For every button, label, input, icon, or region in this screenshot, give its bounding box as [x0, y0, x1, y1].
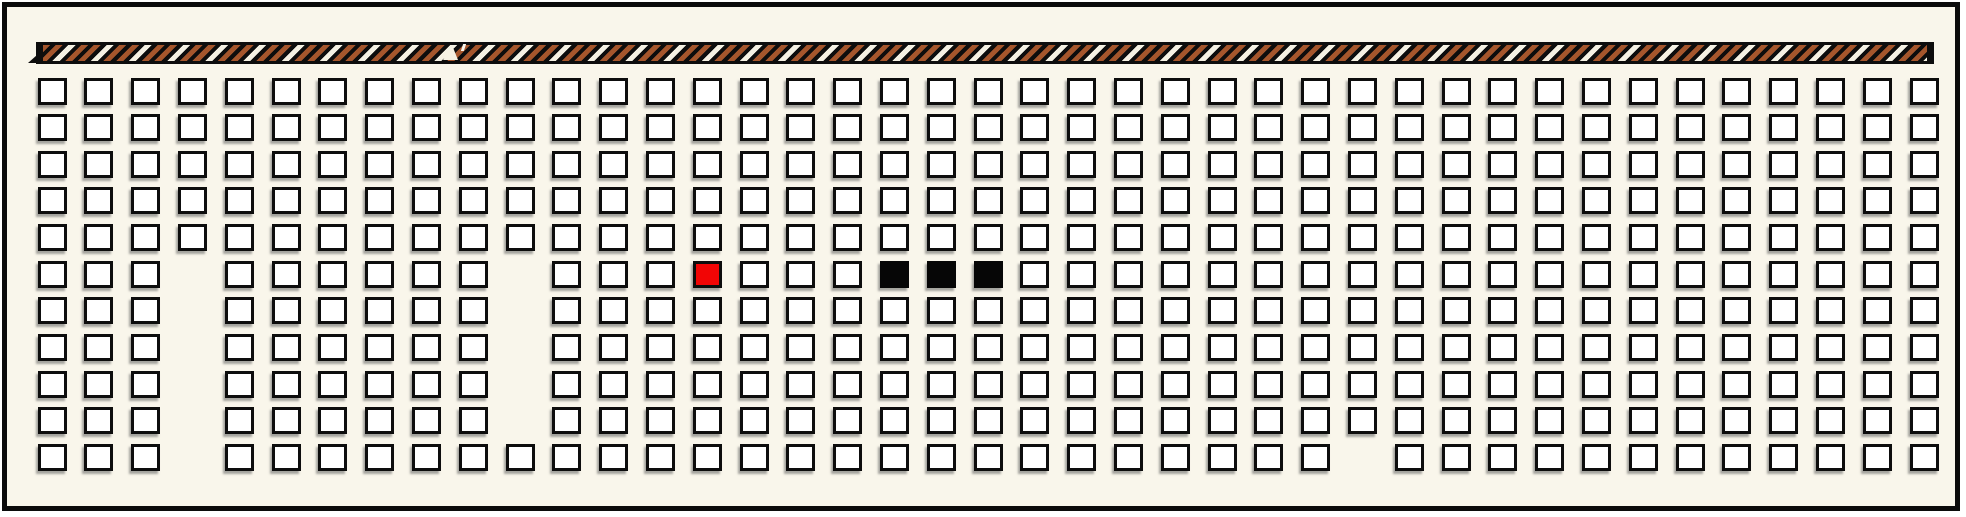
seat[interactable]	[552, 78, 581, 105]
seat[interactable]	[365, 407, 394, 434]
seat[interactable]	[1488, 334, 1517, 361]
seat[interactable]	[1863, 151, 1892, 178]
seat[interactable]	[131, 297, 160, 324]
seat[interactable]	[272, 444, 301, 471]
seat[interactable]	[1020, 371, 1049, 398]
seat[interactable]	[1301, 297, 1330, 324]
seat[interactable]	[693, 187, 722, 214]
seat[interactable]	[880, 114, 909, 141]
seat[interactable]	[1816, 334, 1845, 361]
seat[interactable]	[599, 407, 628, 434]
seat[interactable]	[1348, 151, 1377, 178]
seat[interactable]	[38, 444, 67, 471]
seat[interactable]	[1254, 334, 1283, 361]
seat[interactable]	[786, 78, 815, 105]
seat[interactable]	[880, 187, 909, 214]
seat[interactable]	[459, 297, 488, 324]
seat[interactable]	[740, 187, 769, 214]
seat[interactable]	[412, 407, 441, 434]
seat[interactable]	[365, 444, 394, 471]
seat[interactable]	[1863, 444, 1892, 471]
seat[interactable]	[1208, 261, 1237, 288]
seat[interactable]	[225, 78, 254, 105]
seat[interactable]	[1629, 407, 1658, 434]
seat[interactable]	[365, 151, 394, 178]
seat[interactable]	[1067, 261, 1096, 288]
seat[interactable]	[412, 371, 441, 398]
seat[interactable]	[1348, 114, 1377, 141]
seat[interactable]	[178, 78, 207, 105]
seat[interactable]	[552, 261, 581, 288]
seat[interactable]	[1114, 114, 1143, 141]
seat[interactable]	[1114, 151, 1143, 178]
seat[interactable]	[1208, 78, 1237, 105]
seat[interactable]	[974, 444, 1003, 471]
seat[interactable]	[1816, 444, 1845, 471]
seat[interactable]	[412, 334, 441, 361]
seat[interactable]	[1863, 187, 1892, 214]
seat[interactable]	[1442, 151, 1471, 178]
seat[interactable]	[1722, 407, 1751, 434]
seat[interactable]	[786, 114, 815, 141]
seat[interactable]	[1067, 78, 1096, 105]
seat[interactable]	[1161, 224, 1190, 251]
seat[interactable]	[927, 371, 956, 398]
seat[interactable]	[786, 297, 815, 324]
seat[interactable]	[927, 297, 956, 324]
seat[interactable]	[1676, 444, 1705, 471]
seat[interactable]	[552, 407, 581, 434]
seat[interactable]	[1442, 261, 1471, 288]
seat[interactable]	[1582, 297, 1611, 324]
seat[interactable]	[131, 114, 160, 141]
seat[interactable]	[599, 334, 628, 361]
seat[interactable]	[646, 187, 675, 214]
seat[interactable]	[459, 334, 488, 361]
seat[interactable]	[412, 187, 441, 214]
seat[interactable]	[1488, 224, 1517, 251]
seat[interactable]	[1769, 151, 1798, 178]
seat[interactable]	[1816, 371, 1845, 398]
seat[interactable]	[552, 151, 581, 178]
seat[interactable]	[1910, 151, 1939, 178]
seat[interactable]	[1582, 407, 1611, 434]
seat[interactable]	[1161, 407, 1190, 434]
seat[interactable]	[365, 78, 394, 105]
seat-occupied[interactable]	[880, 261, 909, 288]
seat[interactable]	[1067, 444, 1096, 471]
seat[interactable]	[1582, 334, 1611, 361]
seat[interactable]	[740, 444, 769, 471]
seat[interactable]	[1676, 114, 1705, 141]
seat[interactable]	[318, 114, 347, 141]
seat[interactable]	[880, 334, 909, 361]
seat[interactable]	[506, 78, 535, 105]
seat[interactable]	[927, 187, 956, 214]
seat-occupied[interactable]	[974, 261, 1003, 288]
seat[interactable]	[1348, 224, 1377, 251]
seat[interactable]	[1629, 334, 1658, 361]
seat[interactable]	[1488, 187, 1517, 214]
seat[interactable]	[1067, 407, 1096, 434]
seat[interactable]	[318, 151, 347, 178]
seat[interactable]	[1348, 334, 1377, 361]
seat[interactable]	[318, 444, 347, 471]
seat[interactable]	[740, 297, 769, 324]
seat[interactable]	[84, 371, 113, 398]
seat[interactable]	[365, 297, 394, 324]
seat[interactable]	[318, 371, 347, 398]
seat[interactable]	[318, 297, 347, 324]
seat[interactable]	[38, 297, 67, 324]
seat[interactable]	[459, 224, 488, 251]
seat[interactable]	[272, 261, 301, 288]
seat[interactable]	[1816, 261, 1845, 288]
seat[interactable]	[833, 407, 862, 434]
seat[interactable]	[786, 407, 815, 434]
seat[interactable]	[1442, 114, 1471, 141]
seat[interactable]	[1863, 224, 1892, 251]
seat[interactable]	[225, 334, 254, 361]
seat[interactable]	[974, 224, 1003, 251]
seat[interactable]	[1910, 224, 1939, 251]
seat[interactable]	[506, 444, 535, 471]
seat[interactable]	[1769, 334, 1798, 361]
seat[interactable]	[131, 151, 160, 178]
seat[interactable]	[974, 371, 1003, 398]
seat[interactable]	[1816, 151, 1845, 178]
seat[interactable]	[974, 187, 1003, 214]
seat[interactable]	[1535, 371, 1564, 398]
seat[interactable]	[318, 334, 347, 361]
seat[interactable]	[599, 224, 628, 251]
seat[interactable]	[1395, 371, 1424, 398]
seat[interactable]	[1722, 261, 1751, 288]
seat[interactable]	[38, 371, 67, 398]
seat[interactable]	[178, 187, 207, 214]
seat[interactable]	[1254, 187, 1283, 214]
seat[interactable]	[272, 334, 301, 361]
seat[interactable]	[1348, 371, 1377, 398]
seat[interactable]	[131, 78, 160, 105]
seat[interactable]	[1816, 78, 1845, 105]
seat[interactable]	[1254, 407, 1283, 434]
seat[interactable]	[1208, 114, 1237, 141]
seat[interactable]	[1395, 334, 1424, 361]
seat[interactable]	[1442, 224, 1471, 251]
seat[interactable]	[459, 444, 488, 471]
seat[interactable]	[1629, 371, 1658, 398]
seat[interactable]	[412, 151, 441, 178]
seat[interactable]	[974, 407, 1003, 434]
seat[interactable]	[1395, 224, 1424, 251]
seat[interactable]	[1488, 114, 1517, 141]
seat[interactable]	[412, 224, 441, 251]
seat[interactable]	[1676, 407, 1705, 434]
seat[interactable]	[693, 407, 722, 434]
seat[interactable]	[740, 114, 769, 141]
seat[interactable]	[1161, 114, 1190, 141]
seat[interactable]	[1020, 151, 1049, 178]
seat[interactable]	[1676, 297, 1705, 324]
seat[interactable]	[1488, 371, 1517, 398]
seat[interactable]	[1910, 187, 1939, 214]
seat[interactable]	[1629, 187, 1658, 214]
seat[interactable]	[974, 114, 1003, 141]
seat[interactable]	[1535, 114, 1564, 141]
seat[interactable]	[599, 114, 628, 141]
seat[interactable]	[131, 187, 160, 214]
seat[interactable]	[646, 444, 675, 471]
seat[interactable]	[1629, 444, 1658, 471]
seat[interactable]	[1254, 78, 1283, 105]
seat[interactable]	[1020, 187, 1049, 214]
seat[interactable]	[1208, 371, 1237, 398]
seat[interactable]	[1348, 407, 1377, 434]
seat[interactable]	[1535, 444, 1564, 471]
seat[interactable]	[1722, 297, 1751, 324]
seat[interactable]	[412, 261, 441, 288]
seat[interactable]	[1676, 224, 1705, 251]
seat[interactable]	[131, 371, 160, 398]
seat[interactable]	[1769, 114, 1798, 141]
seat[interactable]	[1816, 114, 1845, 141]
seat[interactable]	[1535, 151, 1564, 178]
seat[interactable]	[740, 151, 769, 178]
seat[interactable]	[84, 187, 113, 214]
seat[interactable]	[1769, 407, 1798, 434]
seat[interactable]	[84, 261, 113, 288]
seat[interactable]	[1067, 297, 1096, 324]
seat[interactable]	[740, 334, 769, 361]
seat[interactable]	[880, 151, 909, 178]
seat[interactable]	[459, 78, 488, 105]
seat[interactable]	[880, 444, 909, 471]
seat[interactable]	[833, 334, 862, 361]
seat[interactable]	[1114, 334, 1143, 361]
seat[interactable]	[1067, 371, 1096, 398]
seat-selected[interactable]	[693, 261, 722, 288]
seat[interactable]	[1020, 334, 1049, 361]
seat[interactable]	[1395, 187, 1424, 214]
seat[interactable]	[318, 78, 347, 105]
seat[interactable]	[786, 151, 815, 178]
seat[interactable]	[1816, 297, 1845, 324]
seat[interactable]	[880, 371, 909, 398]
seat[interactable]	[1676, 78, 1705, 105]
seat[interactable]	[1488, 78, 1517, 105]
seat[interactable]	[1114, 224, 1143, 251]
seat[interactable]	[1301, 224, 1330, 251]
seat[interactable]	[1254, 261, 1283, 288]
seat[interactable]	[38, 187, 67, 214]
seat[interactable]	[1582, 261, 1611, 288]
seat[interactable]	[1301, 407, 1330, 434]
seat[interactable]	[84, 151, 113, 178]
seat[interactable]	[1254, 151, 1283, 178]
seat[interactable]	[1535, 261, 1564, 288]
seat[interactable]	[1114, 261, 1143, 288]
seat[interactable]	[38, 151, 67, 178]
seat[interactable]	[599, 78, 628, 105]
seat[interactable]	[1442, 78, 1471, 105]
seat[interactable]	[1676, 187, 1705, 214]
seat[interactable]	[1582, 371, 1611, 398]
seat[interactable]	[1301, 151, 1330, 178]
seat[interactable]	[833, 297, 862, 324]
seat[interactable]	[1582, 78, 1611, 105]
seat[interactable]	[225, 187, 254, 214]
seat[interactable]	[1395, 407, 1424, 434]
seat[interactable]	[38, 407, 67, 434]
seat[interactable]	[1722, 187, 1751, 214]
seat[interactable]	[1020, 78, 1049, 105]
seat[interactable]	[225, 371, 254, 398]
seat[interactable]	[365, 334, 394, 361]
seat[interactable]	[1629, 297, 1658, 324]
seat[interactable]	[38, 78, 67, 105]
seat[interactable]	[1676, 371, 1705, 398]
seat[interactable]	[740, 224, 769, 251]
seat[interactable]	[1208, 224, 1237, 251]
seat[interactable]	[833, 78, 862, 105]
seat[interactable]	[1161, 371, 1190, 398]
seat[interactable]	[1488, 261, 1517, 288]
seat[interactable]	[693, 224, 722, 251]
seat[interactable]	[1722, 151, 1751, 178]
seat[interactable]	[552, 187, 581, 214]
seat[interactable]	[927, 224, 956, 251]
seat[interactable]	[1769, 78, 1798, 105]
seat[interactable]	[1301, 371, 1330, 398]
seat[interactable]	[131, 407, 160, 434]
seat[interactable]	[646, 371, 675, 398]
seat[interactable]	[38, 114, 67, 141]
seat[interactable]	[974, 297, 1003, 324]
seat[interactable]	[1910, 444, 1939, 471]
seat[interactable]	[1161, 297, 1190, 324]
seat[interactable]	[1114, 297, 1143, 324]
seat[interactable]	[693, 371, 722, 398]
seat[interactable]	[927, 78, 956, 105]
seat[interactable]	[365, 261, 394, 288]
seat[interactable]	[38, 261, 67, 288]
seat[interactable]	[412, 78, 441, 105]
seat[interactable]	[272, 78, 301, 105]
seat[interactable]	[365, 224, 394, 251]
seat[interactable]	[459, 371, 488, 398]
seat[interactable]	[599, 297, 628, 324]
seat[interactable]	[225, 114, 254, 141]
seat[interactable]	[1395, 261, 1424, 288]
seat[interactable]	[1910, 334, 1939, 361]
seat[interactable]	[880, 297, 909, 324]
seat[interactable]	[1910, 114, 1939, 141]
seat[interactable]	[1769, 187, 1798, 214]
seat[interactable]	[927, 444, 956, 471]
seat[interactable]	[1722, 224, 1751, 251]
seat[interactable]	[880, 407, 909, 434]
seat[interactable]	[1629, 224, 1658, 251]
seat[interactable]	[1442, 371, 1471, 398]
seat[interactable]	[1863, 261, 1892, 288]
seat[interactable]	[1208, 187, 1237, 214]
seat[interactable]	[1488, 407, 1517, 434]
seat[interactable]	[459, 187, 488, 214]
seat[interactable]	[1020, 407, 1049, 434]
seat[interactable]	[740, 407, 769, 434]
seat[interactable]	[131, 224, 160, 251]
seat[interactable]	[225, 297, 254, 324]
seat[interactable]	[833, 187, 862, 214]
seat[interactable]	[1020, 297, 1049, 324]
seat[interactable]	[552, 444, 581, 471]
seat[interactable]	[927, 114, 956, 141]
seat[interactable]	[1676, 151, 1705, 178]
seat[interactable]	[786, 187, 815, 214]
seat[interactable]	[84, 297, 113, 324]
seat[interactable]	[1629, 261, 1658, 288]
seat[interactable]	[1208, 151, 1237, 178]
seat[interactable]	[1114, 371, 1143, 398]
seat[interactable]	[1629, 78, 1658, 105]
seat[interactable]	[1816, 187, 1845, 214]
seat[interactable]	[38, 224, 67, 251]
seat[interactable]	[225, 444, 254, 471]
seat[interactable]	[318, 224, 347, 251]
seat[interactable]	[1301, 444, 1330, 471]
seat[interactable]	[1161, 78, 1190, 105]
seat[interactable]	[1442, 407, 1471, 434]
seat[interactable]	[225, 261, 254, 288]
seat[interactable]	[1161, 334, 1190, 361]
seat[interactable]	[459, 407, 488, 434]
seat[interactable]	[318, 261, 347, 288]
seat[interactable]	[1020, 261, 1049, 288]
seat[interactable]	[1442, 444, 1471, 471]
seat[interactable]	[84, 334, 113, 361]
seat[interactable]	[1629, 151, 1658, 178]
seat[interactable]	[1722, 371, 1751, 398]
seat[interactable]	[272, 187, 301, 214]
seat[interactable]	[1114, 444, 1143, 471]
seat[interactable]	[833, 261, 862, 288]
seat[interactable]	[552, 297, 581, 324]
seat[interactable]	[646, 261, 675, 288]
seat[interactable]	[1535, 78, 1564, 105]
seat[interactable]	[552, 371, 581, 398]
seat[interactable]	[1208, 297, 1237, 324]
seat[interactable]	[1301, 114, 1330, 141]
seat[interactable]	[599, 261, 628, 288]
seat[interactable]	[833, 371, 862, 398]
seat[interactable]	[552, 114, 581, 141]
seat[interactable]	[1582, 151, 1611, 178]
seat[interactable]	[1161, 187, 1190, 214]
seat[interactable]	[1395, 78, 1424, 105]
seat[interactable]	[646, 334, 675, 361]
seat[interactable]	[1020, 444, 1049, 471]
seat[interactable]	[786, 224, 815, 251]
seat[interactable]	[1769, 371, 1798, 398]
seat[interactable]	[1722, 114, 1751, 141]
seat[interactable]	[740, 371, 769, 398]
seat[interactable]	[131, 444, 160, 471]
seat[interactable]	[1722, 444, 1751, 471]
seat[interactable]	[1769, 261, 1798, 288]
seat[interactable]	[412, 114, 441, 141]
seat[interactable]	[1301, 334, 1330, 361]
